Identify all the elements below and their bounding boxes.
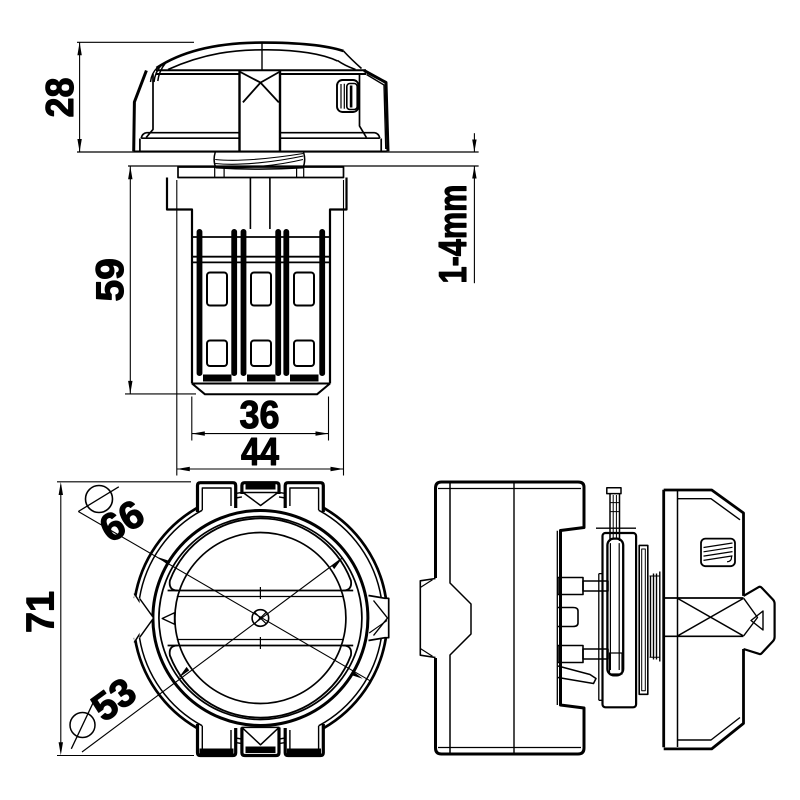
svg-text:59: 59 — [89, 258, 132, 301]
svg-text:44: 44 — [241, 431, 279, 474]
svg-text:1-4mm: 1-4mm — [432, 185, 475, 284]
svg-text:71: 71 — [20, 591, 63, 633]
svg-text:28: 28 — [39, 78, 82, 118]
